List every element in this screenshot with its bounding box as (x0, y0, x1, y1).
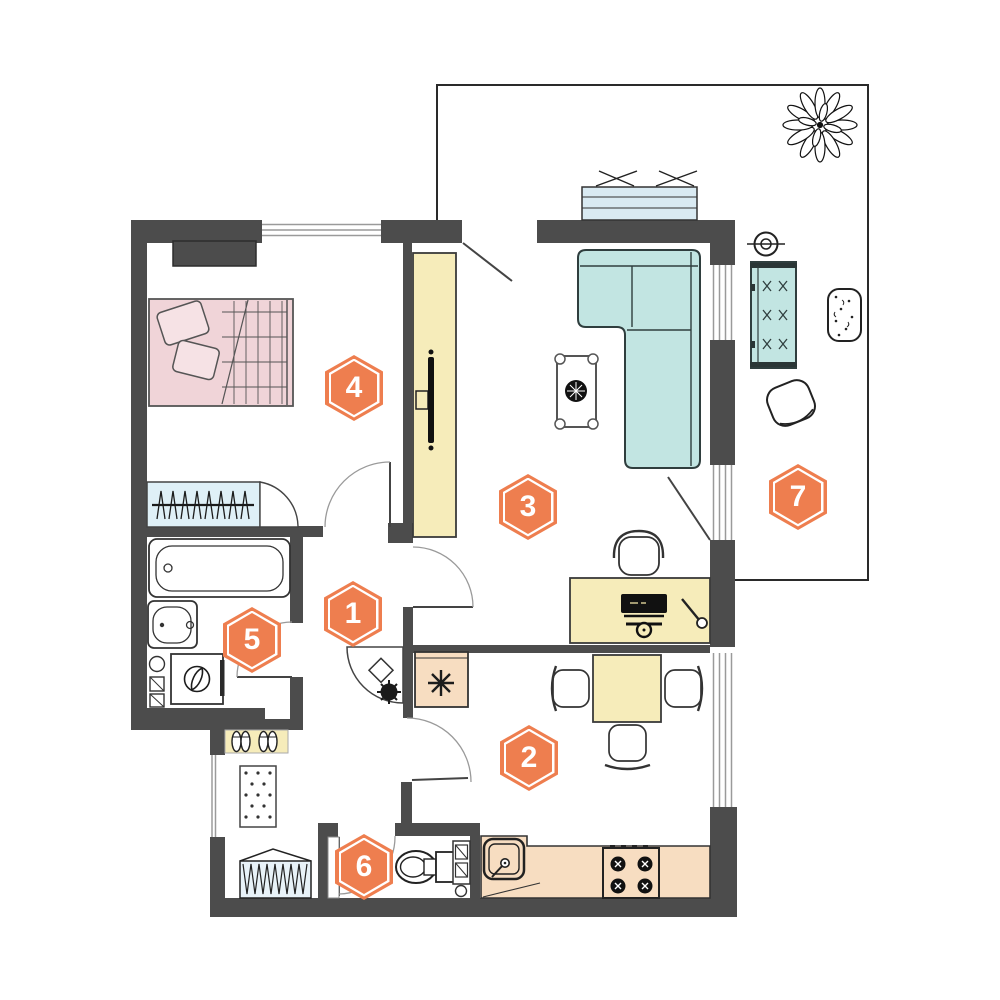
bathtub (149, 539, 290, 597)
terrace-plant (783, 88, 857, 162)
bedroom-door (325, 462, 390, 527)
shoe-shelf (225, 730, 288, 753)
dining-table (593, 655, 661, 722)
living-room-door (413, 547, 473, 607)
room-number: 4 (346, 371, 363, 405)
dining-chair-left (552, 666, 589, 711)
desk-chair (614, 531, 663, 575)
room-number: 7 (790, 480, 807, 514)
monitor-icon (621, 594, 667, 616)
terrace-entry-door (463, 243, 512, 281)
window-lower-left (212, 755, 216, 837)
corner-plant-stand (347, 647, 403, 704)
terrace-bench (750, 262, 797, 368)
room-number: 1 (345, 597, 362, 631)
terrace-mat (828, 289, 861, 341)
flower-box (582, 171, 697, 220)
shoe-bench (240, 849, 311, 898)
room-number: 3 (520, 490, 537, 524)
dining-chair-bottom (605, 725, 650, 769)
doormat-rug (240, 766, 276, 827)
kitchen-sink (484, 839, 524, 879)
desk (570, 578, 710, 643)
window-right-1 (714, 265, 732, 340)
terrace-light-icon (747, 233, 785, 256)
window-right-2 (714, 465, 732, 540)
wardrobe-closet-hangers (147, 482, 298, 527)
bedroom-radiator (173, 241, 256, 266)
toilet (396, 851, 454, 883)
floor-plan: 1 2 3 4 5 6 7 (0, 0, 1000, 1000)
bathroom-sink (148, 601, 197, 648)
dining-chair-right (665, 666, 702, 711)
stove (603, 845, 659, 898)
room-number: 5 (244, 623, 261, 657)
room-number: 6 (356, 850, 373, 884)
room-number: 2 (521, 741, 538, 775)
washing-machine (171, 654, 225, 704)
plant-cabinet (415, 652, 468, 707)
bed (149, 299, 293, 406)
window-right-3 (714, 653, 732, 807)
wc-cabinet (453, 841, 470, 897)
coffee-table (555, 354, 598, 429)
kitchen-door (407, 718, 471, 782)
bathroom-cabinet (150, 657, 165, 708)
terrace-balcony-door (668, 477, 710, 540)
terrace-chair (763, 376, 819, 430)
tv-cabinet (413, 253, 456, 537)
